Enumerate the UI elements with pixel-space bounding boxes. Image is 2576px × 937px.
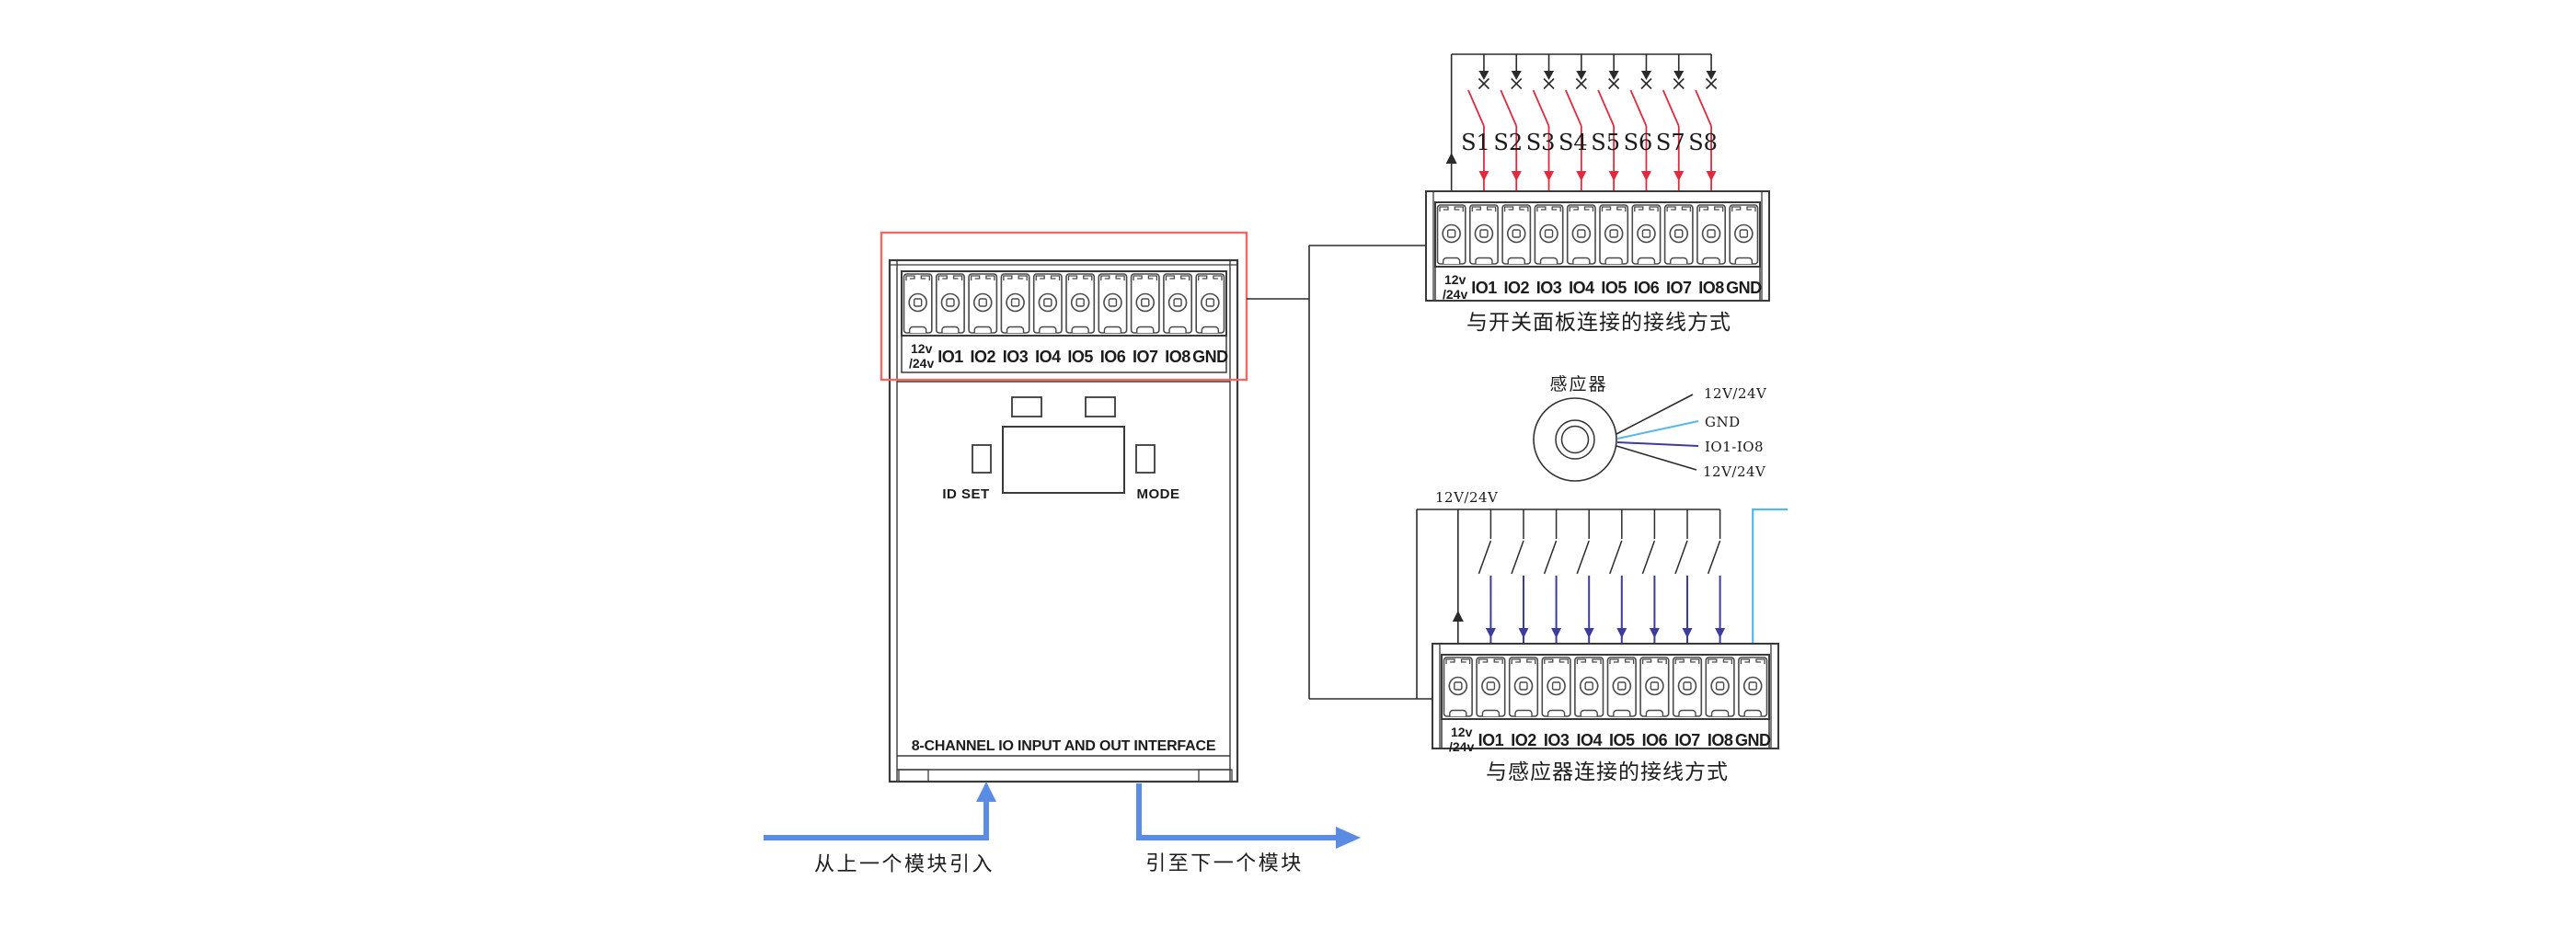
switch-label: S7 (1656, 130, 1685, 155)
notch-icon (1072, 327, 1088, 334)
power-label: /24v (909, 356, 934, 371)
id-set-button[interactable] (972, 445, 991, 473)
notch-icon (1169, 327, 1186, 334)
io-label: IO4 (1035, 348, 1061, 366)
notch-icon (1573, 258, 1590, 265)
screw-icon (1540, 225, 1558, 243)
arrowhead-icon (1576, 171, 1586, 181)
terminal-cell (1665, 205, 1693, 264)
switch-label: S1 (1461, 130, 1490, 155)
screw-icon (1581, 678, 1598, 695)
sensor-label: 感应器 (1549, 374, 1607, 394)
switch-label: S3 (1526, 130, 1556, 155)
arrowhead-icon (1673, 171, 1684, 181)
arrowhead-icon (1478, 71, 1489, 80)
sensor-lead-label-power-bottom: 12V/24V (1703, 463, 1766, 480)
sensor-io-lead (1617, 442, 1698, 446)
inflow-arrow-line (764, 794, 986, 838)
arrowhead-icon (1609, 71, 1619, 80)
sensor-switch-blade (1610, 541, 1622, 574)
notch-icon (1482, 711, 1499, 717)
sensor-gnd-lead (1617, 421, 1698, 439)
notch-icon (1202, 327, 1218, 334)
arrowhead-icon (1609, 171, 1619, 181)
indicator-window-left (1012, 397, 1041, 417)
wiring-diagram: 12v/24vIO1IO2IO3IO4IO5IO6IO7IO8GND ID SE… (0, 0, 2576, 937)
notch-icon (1104, 327, 1121, 334)
arrowhead-icon (1576, 71, 1586, 80)
arrowhead-icon (1650, 628, 1660, 638)
arrowhead-icon (1544, 71, 1554, 80)
sensor-switch-blade (1708, 541, 1720, 574)
terminal-cell (1706, 657, 1734, 716)
switch-label: S2 (1493, 130, 1523, 155)
sensor-switch-blade (1478, 541, 1490, 574)
power-label: 12v (1451, 725, 1473, 739)
sensor-wiring-caption: 与感应器连接的接线方式 (1486, 760, 1729, 784)
notch-icon (1703, 258, 1719, 265)
arrowhead-icon (1616, 628, 1627, 638)
din-clip-right (1199, 770, 1232, 782)
notch-icon (942, 327, 959, 334)
switch-blade (1501, 90, 1516, 126)
notch-icon (910, 327, 926, 334)
sensor-power-lead-top (1616, 394, 1693, 434)
notch-icon (1548, 711, 1565, 717)
switch-label: S6 (1624, 130, 1653, 155)
io-label: IO2 (1511, 731, 1536, 749)
notch-icon (1671, 258, 1687, 265)
inflow-label: 从上一个模块引入 (814, 853, 995, 876)
notch-icon (1679, 711, 1696, 717)
sensor-figure: 感应器 12V/24V GND IO1-IO8 12V/24V (1534, 374, 1767, 481)
sensor-wiring-diagram: 12V/24V 12v/24vIO1IO2IO3IO4IO5IO6IO7IO8G… (1417, 489, 1788, 784)
sensor-lead-label-power-top: 12V/24V (1704, 385, 1767, 402)
arrowhead-icon (1641, 71, 1651, 80)
notch-icon (1605, 258, 1622, 265)
switch-panel-caption: 与开关面板连接的接线方式 (1466, 311, 1731, 335)
io-label: IO7 (1666, 279, 1692, 297)
terminal-cell (904, 274, 932, 333)
screw-icon (1006, 294, 1024, 312)
screw-icon (909, 294, 926, 312)
notch-icon (1638, 258, 1654, 265)
switch-terminal-block: 12v/24vIO1IO2IO3IO4IO5IO6IO7IO8GND (1426, 191, 1769, 302)
io-label: IO6 (1634, 279, 1660, 297)
switch-label: S4 (1558, 130, 1588, 155)
arrowhead-icon (1478, 171, 1489, 181)
arrowhead-icon (1673, 71, 1684, 80)
notch-icon (1515, 711, 1532, 717)
screw-icon (1646, 678, 1663, 695)
sensor-power-lead-bottom (1616, 446, 1696, 470)
io-label: IO7 (1133, 348, 1158, 366)
arrowhead-icon (1551, 628, 1561, 638)
screw-icon (1711, 678, 1729, 695)
terminal-cell (1477, 657, 1505, 716)
io-label: IO4 (1569, 279, 1594, 297)
outflow-label: 引至下一个模块 (1145, 852, 1304, 875)
screw-icon (1572, 225, 1590, 243)
notch-icon (1450, 711, 1466, 717)
arrowhead-icon (1584, 628, 1594, 638)
power-label: /24v (1449, 739, 1474, 754)
terminal-cell (1542, 657, 1570, 716)
arrowhead-icon (1707, 71, 1717, 80)
screw-icon (1605, 225, 1623, 243)
notch-icon (1476, 258, 1492, 265)
screw-icon (1136, 294, 1154, 312)
sensor-terminal-block: 12v/24vIO1IO2IO3IO4IO5IO6IO7IO8GND (1432, 644, 1778, 754)
notch-icon (1646, 711, 1662, 717)
arrowhead-icon (1715, 628, 1725, 638)
terminal-cell (1132, 274, 1159, 333)
power-label: /24v (1443, 287, 1467, 302)
arrowhead-icon (1544, 171, 1554, 181)
din-clip-left (899, 770, 928, 782)
sensor-switch-blade (1642, 541, 1654, 574)
terminal-cell (1510, 657, 1538, 716)
connector-lines (1247, 246, 1432, 699)
io-label: IO8 (1708, 731, 1733, 749)
io-label: IO3 (1003, 348, 1029, 366)
screw-icon (974, 294, 992, 312)
arrowhead-icon (1486, 628, 1496, 638)
terminal-cell (1196, 274, 1224, 333)
arrowhead-icon (1683, 628, 1693, 638)
screw-icon (1508, 225, 1525, 243)
screw-icon (1039, 294, 1056, 312)
sensor-switch-blade (1512, 541, 1524, 574)
screw-icon (1169, 294, 1187, 312)
screw-icon (1744, 678, 1762, 695)
sensor-lead-label-gnd: GND (1705, 414, 1741, 430)
terminal-cell (1444, 657, 1473, 716)
mode-label: MODE (1137, 486, 1180, 502)
io-label: IO6 (1100, 348, 1126, 366)
terminal-cell (1535, 205, 1562, 264)
switch-blade (1534, 90, 1549, 126)
io-label: IO5 (1601, 279, 1627, 297)
outflow-arrow-line (1139, 783, 1336, 838)
power-label: 12v (911, 341, 933, 356)
io-label: IO7 (1674, 731, 1700, 749)
notch-icon (1443, 258, 1460, 265)
terminal-cell (1600, 205, 1627, 264)
device-outline (890, 260, 1237, 782)
screw-icon (1072, 294, 1089, 312)
screw-icon (1679, 678, 1696, 695)
screw-icon (1202, 294, 1219, 312)
io-label: IO4 (1576, 731, 1602, 749)
notch-icon (1541, 258, 1558, 265)
sensor-switch-blade (1577, 541, 1589, 574)
switch-blade (1696, 90, 1711, 126)
flow-arrows: 从上一个模块引入 引至下一个模块 (764, 782, 1361, 876)
io-label: IO5 (1067, 348, 1093, 366)
inflow-arrow-head (976, 782, 996, 802)
main-device: 12v/24vIO1IO2IO3IO4IO5IO6IO7IO8GND ID SE… (890, 260, 1237, 782)
screw-icon (1449, 678, 1466, 695)
screw-icon (1547, 678, 1565, 695)
screw-icon (1482, 678, 1500, 695)
screw-icon (1735, 225, 1753, 243)
switch-label: S5 (1591, 130, 1620, 155)
terminal-cell (1034, 274, 1062, 333)
terminal-cell (1608, 657, 1637, 716)
terminal-cell (1502, 205, 1530, 264)
arrowhead-icon (1512, 71, 1522, 80)
switch-blade (1468, 90, 1484, 126)
notch-icon (1712, 711, 1729, 717)
arrowhead-icon (1512, 171, 1522, 181)
device-footer-label: 8-CHANNEL IO INPUT AND OUT INTERFACE (912, 738, 1216, 754)
terminal-cell (1438, 205, 1466, 264)
indicator-window-right (1086, 397, 1115, 417)
sensor-outer-circle (1534, 398, 1616, 481)
terminal-cell (1001, 274, 1029, 333)
display-window (1003, 427, 1124, 493)
sensor-switch-blade (1675, 541, 1687, 574)
power-label: 12v (1444, 272, 1466, 287)
terminal-cell (1470, 205, 1498, 264)
io-label: IO1 (937, 348, 963, 366)
notch-icon (1508, 258, 1524, 265)
io-label: IO1 (1478, 731, 1504, 749)
notch-icon (1581, 711, 1597, 717)
sensor-bus-label: 12V/24V (1435, 489, 1499, 506)
id-set-label: ID SET (942, 486, 989, 502)
screw-icon (1515, 678, 1533, 695)
screw-icon (1613, 678, 1630, 695)
arrowhead-icon (1519, 628, 1529, 638)
terminal-cell (1673, 657, 1702, 716)
terminal-cell (937, 274, 964, 333)
io-label: IO1 (1471, 279, 1497, 297)
notch-icon (1744, 711, 1761, 717)
arrowhead-icon (1641, 171, 1651, 181)
screw-icon (1104, 294, 1121, 312)
gnd-label: GND (1726, 279, 1762, 297)
notch-icon (1007, 327, 1024, 334)
switch-label: S8 (1688, 130, 1718, 155)
sensor-inner-circle (1562, 427, 1589, 453)
screw-icon (1670, 225, 1687, 243)
screw-icon (941, 294, 959, 312)
terminal-cell (1098, 274, 1126, 333)
switch-blade (1663, 90, 1679, 126)
terminal-cell (1632, 205, 1660, 264)
screw-icon (1475, 225, 1492, 243)
notch-icon (1137, 327, 1154, 334)
io-label: IO8 (1698, 279, 1724, 297)
notch-icon (974, 327, 991, 334)
screw-icon (1638, 225, 1655, 243)
terminal-cell (1164, 274, 1191, 333)
terminal-cell (1739, 657, 1767, 716)
terminal-cell (1730, 205, 1757, 264)
arrowhead-icon (1446, 153, 1457, 164)
mode-button[interactable] (1136, 445, 1155, 473)
io-label: IO8 (1165, 348, 1190, 366)
screw-icon (1703, 225, 1720, 243)
io-label: IO2 (970, 348, 995, 366)
outflow-arrow-head (1336, 827, 1361, 849)
arrowhead-icon (1707, 171, 1717, 181)
io-label: IO3 (1544, 731, 1570, 749)
switch-blade (1630, 90, 1646, 126)
terminal-cell (1066, 274, 1094, 333)
sensor-lead-label-io: IO1-IO8 (1705, 439, 1764, 455)
arrowhead-icon (1453, 611, 1464, 622)
screw-icon (1443, 225, 1460, 243)
gnd-label: GND (1192, 348, 1228, 366)
terminal-cell (969, 274, 996, 333)
terminal-cell (1575, 657, 1604, 716)
terminal-cell (1640, 657, 1669, 716)
sensor-switch-blade (1545, 541, 1557, 574)
terminal-cell (1697, 205, 1725, 264)
io-label: IO2 (1503, 279, 1529, 297)
io-label: IO3 (1536, 279, 1562, 297)
terminal-cell (1568, 205, 1595, 264)
switch-panel-diagram: S1S2S3S4S5S6S7S8 12v/24vIO1IO2IO3IO4IO5I… (1426, 54, 1769, 335)
io-label: IO5 (1609, 731, 1635, 749)
switch-blade (1598, 90, 1614, 126)
gnd-label: GND (1735, 731, 1771, 749)
notch-icon (1040, 327, 1056, 334)
io-label: IO6 (1642, 731, 1668, 749)
notch-icon (1614, 711, 1630, 717)
switch-blade (1566, 90, 1581, 126)
notch-icon (1735, 258, 1752, 265)
main-terminal-block: 12v/24vIO1IO2IO3IO4IO5IO6IO7IO8GND (902, 271, 1228, 372)
